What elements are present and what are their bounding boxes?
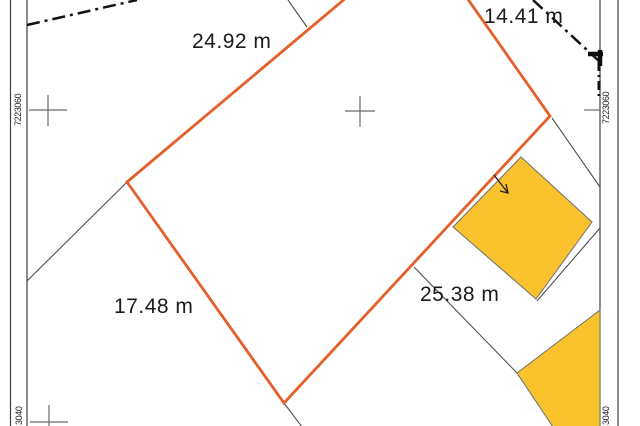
grid-cross <box>29 95 67 126</box>
northing-label-top-left: 7223060 <box>13 94 23 126</box>
dimension-label-bottom: 25.38 m <box>420 283 499 307</box>
cadastral-map: 24.92 m 14.41 m 17.48 m 25.38 m 7223060 … <box>0 0 640 426</box>
neighbor-boundary-line <box>552 118 600 187</box>
neighbor-boundary-line <box>284 403 302 426</box>
grid-cross <box>30 405 68 426</box>
grid-cross <box>345 96 375 127</box>
dimension-label-right: 14.41 m <box>484 5 563 29</box>
dimension-label-left: 17.48 m <box>114 295 193 319</box>
northing-label-bottom-left: 3040 <box>14 407 24 425</box>
neighbor-boundary-line <box>288 0 307 27</box>
map-canvas <box>0 0 640 426</box>
neighbor-boundary-line <box>27 182 127 281</box>
northing-label-top-right: 7223060 <box>601 92 611 124</box>
admin-boundary-dashdot <box>27 0 137 25</box>
northing-label-bottom-right: 3040 <box>601 407 611 425</box>
dimension-label-top: 24.92 m <box>192 30 271 54</box>
building-footprint <box>453 157 592 299</box>
building-footprint <box>517 310 600 426</box>
